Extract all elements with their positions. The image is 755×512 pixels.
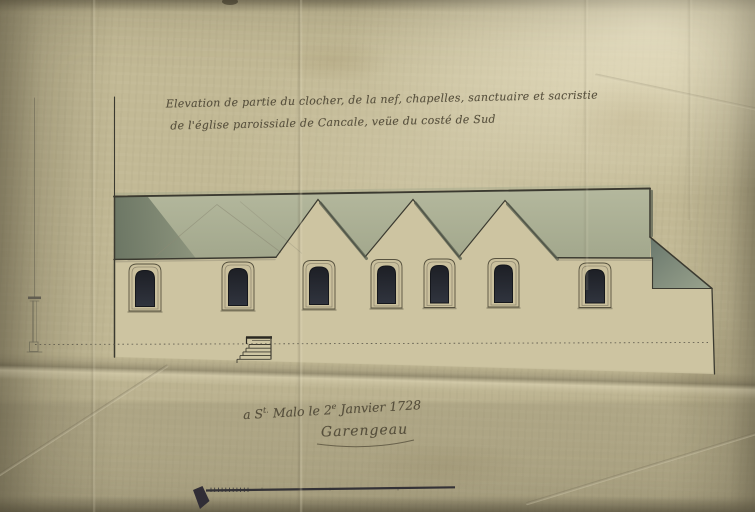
arched-window bbox=[370, 260, 404, 310]
arched-window bbox=[128, 264, 163, 312]
drawing-title: Elevation de partie du clocher, de la ne… bbox=[166, 84, 599, 137]
arched-window bbox=[578, 263, 613, 309]
pilaster-base bbox=[30, 342, 39, 352]
arched-window bbox=[302, 261, 337, 311]
date-part: a S bbox=[243, 406, 264, 422]
signature-flourish bbox=[317, 440, 414, 447]
photographed-manuscript: Elevation de partie du clocher, de la ne… bbox=[0, 0, 755, 512]
pilaster-capital bbox=[28, 297, 41, 300]
graphic-scale-bar bbox=[193, 486, 455, 509]
signature: Garengeau bbox=[321, 421, 409, 440]
arched-window bbox=[423, 259, 457, 309]
bell-tower-pilaster bbox=[27, 98, 42, 352]
arched-window bbox=[487, 259, 521, 309]
arched-window bbox=[221, 262, 256, 311]
title-line-1: Elevation de partie du clocher, de la ne… bbox=[166, 88, 598, 110]
